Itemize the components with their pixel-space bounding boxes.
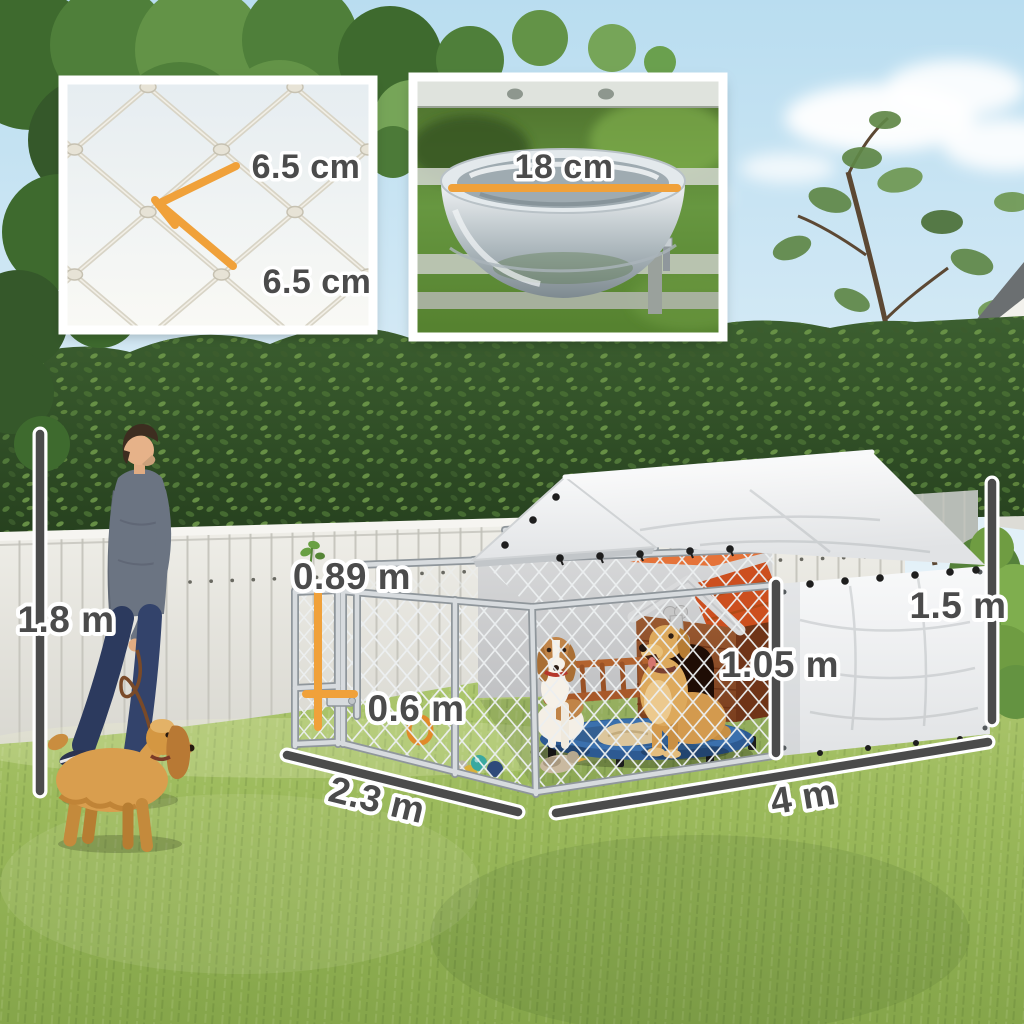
mesh-detail-inset: 6.5 cm 6.5 cm [63,80,373,330]
dimension-label-roof-height: 1.5 m [909,585,1006,626]
mesh-width-label: 6.5 cm [252,148,361,186]
product-scene: 1.8 m 0.89 m 0.6 m 2.3 m 4 m 1.05 m 1.5 … [0,0,1024,1024]
spaniel-ear [166,725,190,779]
bowl-diameter-label: 18 cm [515,148,614,186]
bowl-detail-inset: 18 cm [410,77,750,337]
backyard-kennel-illustration: 1.8 m 0.89 m 0.6 m 2.3 m 4 m 1.05 m 1.5 … [0,0,1024,1024]
dimension-label-gate-width: 0.6 m [367,688,464,729]
dimension-label-wall-height: 1.05 m [721,644,839,685]
dimension-label-person-height: 1.8 m [17,599,114,640]
dimension-label-gate-height: 0.89 m [293,556,411,597]
mesh-height-label: 6.5 cm [263,263,372,301]
